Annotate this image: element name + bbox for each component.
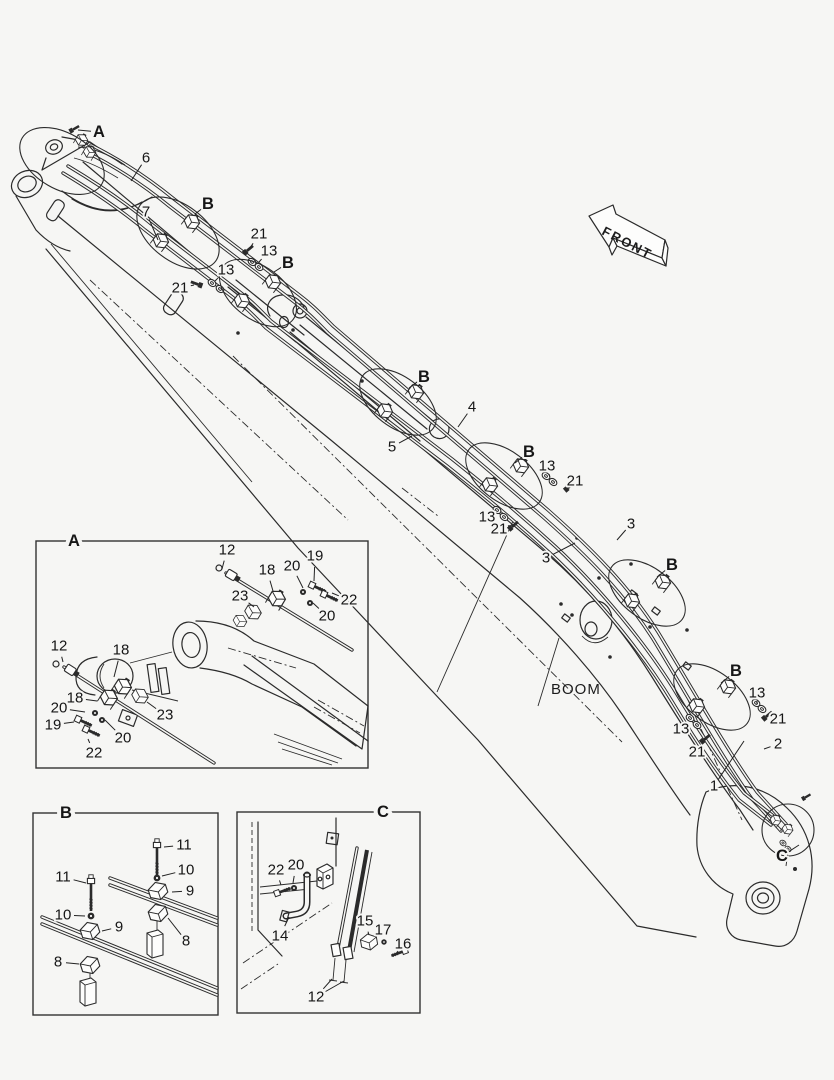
part-number-label: 6 (142, 150, 150, 167)
part-number-label: 13 (749, 685, 766, 702)
main-callouts: A6B72113B1321B45B1321132133BB1321132211C (78, 123, 799, 865)
leader-line (66, 963, 79, 964)
part-number-label: 20 (319, 608, 336, 625)
leader-line (168, 918, 181, 935)
part-number-label: 8 (54, 954, 62, 971)
leader-line (222, 561, 224, 569)
leader-line (88, 739, 90, 743)
detail-letter-label: B (418, 368, 430, 386)
leader-line (323, 979, 332, 989)
leader-line (297, 576, 303, 588)
part-number-label: 20 (115, 730, 132, 747)
leader-line (162, 873, 175, 876)
part-number-label: 18 (259, 562, 276, 579)
boom-side-boss (580, 601, 612, 643)
detail-letter-label: B (282, 254, 294, 272)
leader-line (191, 285, 194, 286)
detail-box-b: B111091110988 (33, 804, 218, 1015)
detail-c-callouts: C22201415171612 (268, 803, 412, 1006)
part-number-label: 16 (395, 936, 412, 953)
excavator-boom-piping-diagram: FRONT BOOM (0, 0, 834, 1080)
detail-letter-label: A (68, 532, 80, 550)
leader-line (458, 414, 467, 427)
leader-line (293, 876, 294, 883)
part-number-label: 10 (55, 907, 72, 924)
leader-line (508, 526, 509, 527)
detail-b-callouts: B111091110988 (54, 804, 195, 971)
leader-line (86, 700, 97, 702)
leader-line (74, 916, 85, 917)
leader-line (259, 259, 262, 262)
part-number-label: 10 (178, 862, 195, 879)
part-number-label: 11 (55, 869, 71, 886)
part-number-label: 13 (261, 243, 278, 260)
part-number-label: 13 (218, 262, 235, 279)
part-number-label: 17 (375, 922, 392, 939)
part-number-label: 18 (67, 690, 84, 707)
part-number-label: 20 (51, 700, 68, 717)
part-number-label: 21 (172, 280, 189, 297)
detail-a-callouts: A121820192220231218182019222023 (45, 532, 358, 762)
part-number-label: 1 (710, 778, 718, 795)
detail-letter-label: B (666, 556, 678, 574)
part-number-label: 7 (142, 204, 150, 221)
part-number-label: 9 (186, 883, 194, 900)
leader-line (332, 593, 339, 596)
detail-letter-label: B (202, 195, 214, 213)
boom-bottom-edge (46, 249, 696, 937)
part-number-label: 19 (307, 548, 324, 565)
part-number-label: 3 (542, 550, 550, 567)
leader-line (617, 530, 626, 540)
part-number-label: 14 (272, 928, 289, 945)
part-number-label: 22 (86, 745, 103, 762)
leader-line (702, 741, 703, 742)
boom-label: BOOM (551, 681, 601, 698)
part-number-label: 20 (288, 857, 305, 874)
part-number-label: 5 (388, 439, 396, 456)
detail-letter-label: C (377, 803, 389, 821)
part-number-label: 23 (157, 707, 174, 724)
leader-line (147, 702, 156, 709)
detail-letter-label: C (776, 847, 788, 865)
part-number-label: 13 (673, 721, 690, 738)
detail-letter-label: B (60, 804, 72, 822)
detail-letter-label: B (730, 662, 742, 680)
part-number-label: 21 (567, 473, 584, 490)
leader-line (78, 130, 91, 131)
part-number-label: 22 (268, 862, 285, 879)
part-number-label: 12 (308, 989, 325, 1006)
part-number-label: 11 (176, 837, 192, 854)
leader-line (74, 880, 86, 883)
part-number-label: 18 (113, 642, 130, 659)
part-number-label: 15 (357, 913, 374, 930)
detail-a-drawing (53, 565, 368, 765)
part-number-label: 3 (627, 516, 635, 533)
parts-catalog-page: FRONT BOOM (0, 0, 834, 1080)
boom-foot (697, 786, 812, 947)
leader-line (764, 747, 771, 749)
detail-box-a: A121820192220231218182019222023 (36, 532, 368, 768)
detail-box-c: C22201415171612 (237, 803, 420, 1013)
leader-line (64, 722, 74, 723)
leader-line (164, 846, 173, 847)
front-arrow: FRONT (589, 205, 668, 266)
detail-c-drawing (241, 818, 408, 989)
part-number-label: 23 (232, 588, 249, 605)
part-number-label: 12 (219, 542, 236, 559)
part-number-label: 13 (539, 458, 556, 475)
leader-line (114, 661, 118, 677)
leader-line (70, 710, 85, 712)
part-number-label: 12 (51, 638, 68, 655)
part-number-label: 2 (774, 736, 782, 753)
leader-line (102, 929, 111, 931)
detail-letter-label: B (523, 443, 535, 461)
leader-line (62, 657, 63, 662)
leader-line (172, 891, 182, 892)
part-number-label: 8 (182, 933, 190, 950)
part-number-label: 9 (115, 919, 123, 936)
leader-line (270, 581, 273, 591)
part-number-label: 21 (689, 744, 706, 761)
leader-line (105, 720, 115, 730)
detail-letter-label: A (93, 123, 105, 141)
part-number-label: 19 (45, 717, 62, 734)
part-number-label: 21 (770, 711, 787, 728)
part-number-label: 20 (284, 558, 301, 575)
leader-line (314, 567, 315, 581)
part-number-label: 4 (468, 399, 476, 416)
part-number-label: 22 (341, 592, 358, 609)
leader-line (280, 880, 282, 885)
part-number-label: 21 (491, 521, 508, 538)
part-number-label: 21 (251, 226, 268, 243)
leader-line (274, 267, 281, 272)
boom-top-edge (83, 162, 753, 830)
